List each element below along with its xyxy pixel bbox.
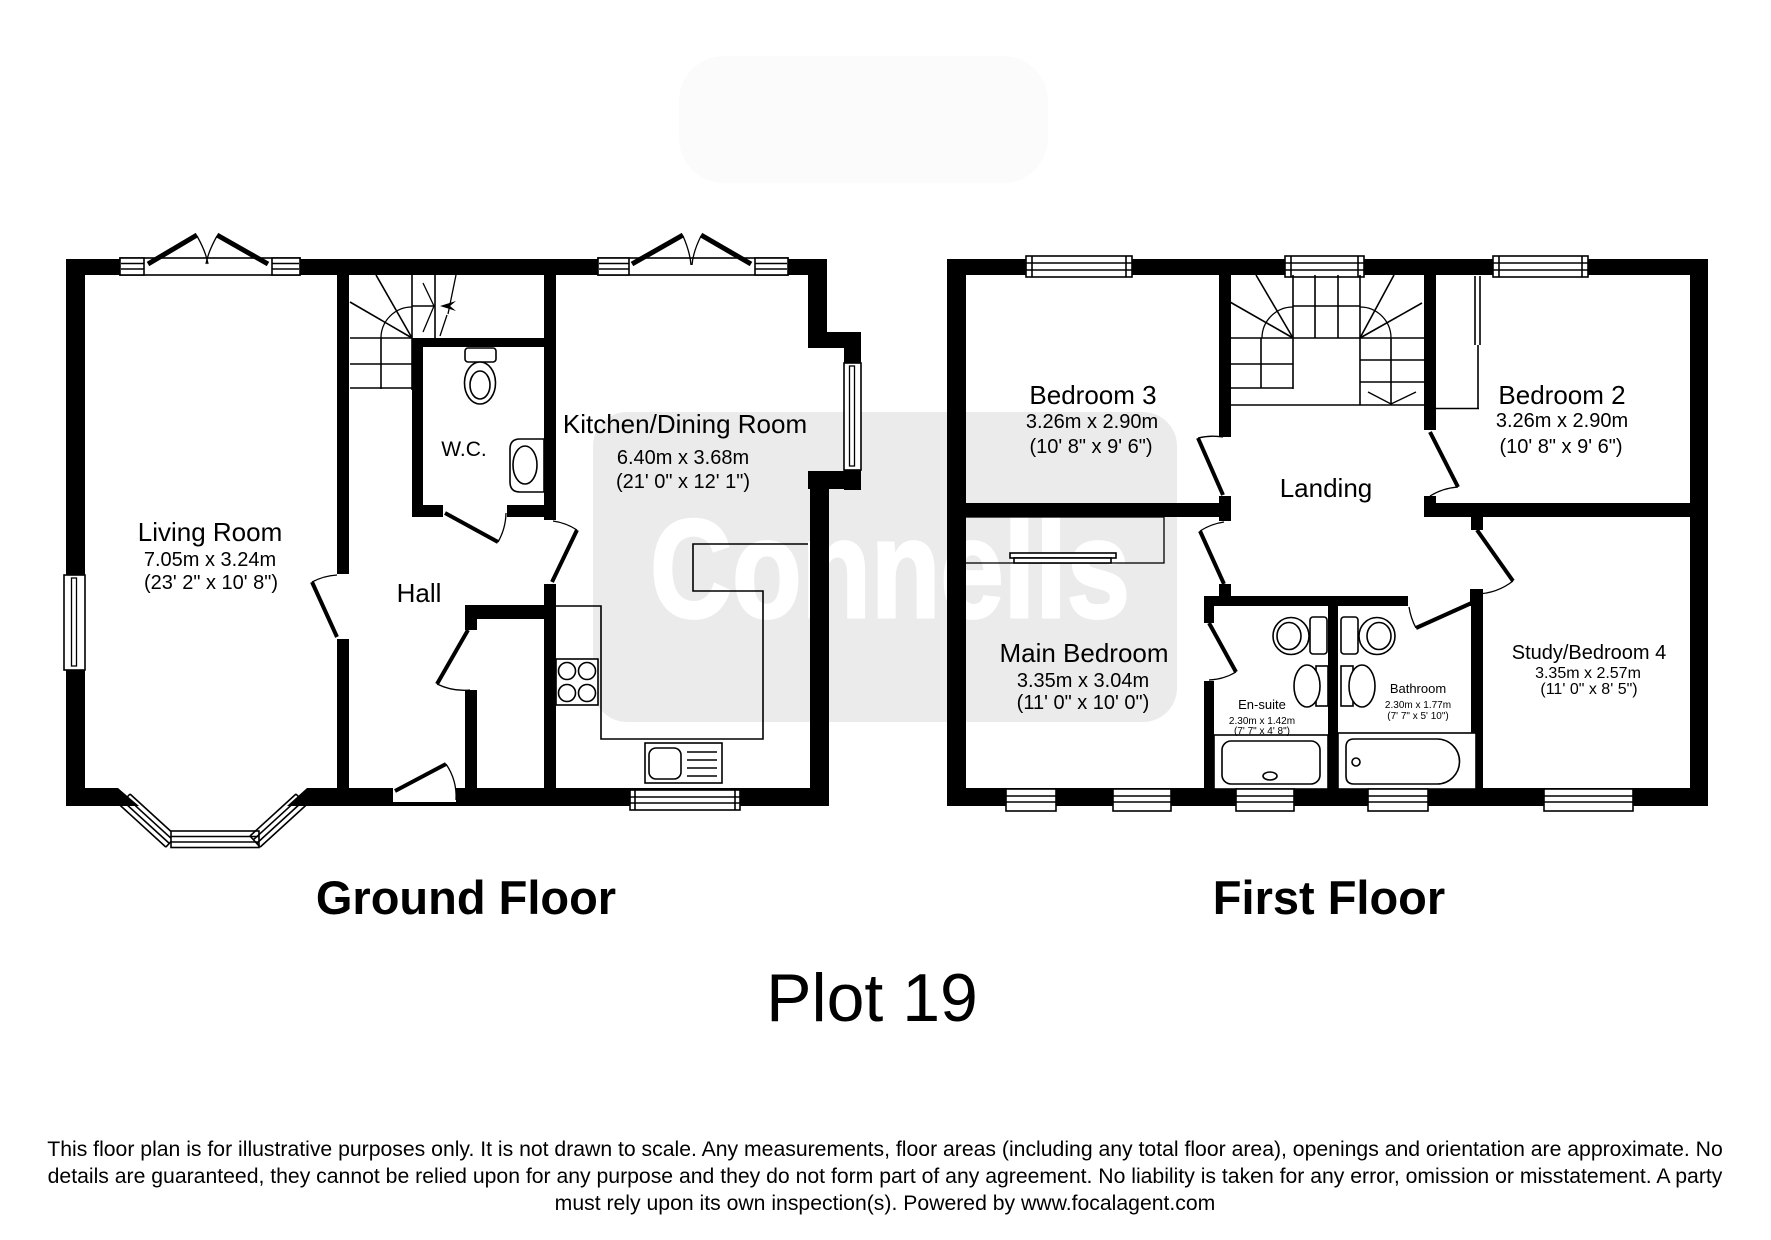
svg-text:Hall: Hall [397, 578, 442, 608]
svg-text:(23' 2" x 10' 8"): (23' 2" x 10' 8") [144, 572, 278, 594]
svg-text:Plot 19: Plot 19 [766, 960, 978, 1036]
svg-text:Bathroom: Bathroom [1390, 681, 1446, 696]
svg-text:Living Room: Living Room [138, 517, 283, 547]
svg-text:3.35m x 3.04m: 3.35m x 3.04m [1017, 670, 1149, 692]
svg-text:6.40m x 3.68m: 6.40m x 3.68m [617, 447, 749, 469]
svg-text:details are guaranteed, they c: details are guaranteed, they cannot be r… [48, 1165, 1723, 1188]
svg-text:(7' 7" x 5' 10"): (7' 7" x 5' 10") [1387, 711, 1449, 722]
svg-text:(11' 0" x 8' 5"): (11' 0" x 8' 5") [1540, 681, 1637, 698]
svg-text:Bedroom 2: Bedroom 2 [1498, 380, 1625, 410]
svg-text:Landing: Landing [1280, 473, 1373, 503]
svg-text:Study/Bedroom 4: Study/Bedroom 4 [1512, 642, 1667, 664]
svg-text:7.05m x 3.24m: 7.05m x 3.24m [144, 549, 276, 571]
svg-text:(7' 7" x 4' 8"): (7' 7" x 4' 8") [1234, 726, 1290, 737]
svg-text:Main Bedroom: Main Bedroom [999, 638, 1168, 668]
svg-text:En-suite: En-suite [1238, 697, 1286, 712]
svg-text:W.C.: W.C. [441, 438, 487, 461]
svg-text:(21' 0" x 12' 1"): (21' 0" x 12' 1") [616, 471, 750, 493]
svg-text:Ground Floor: Ground Floor [316, 871, 616, 924]
svg-text:3.26m x 2.90m: 3.26m x 2.90m [1026, 411, 1158, 433]
svg-text:2.30m x 1.77m: 2.30m x 1.77m [1385, 700, 1451, 711]
svg-text:Kitchen/Dining Room: Kitchen/Dining Room [563, 409, 807, 439]
svg-text:3.35m x 2.57m: 3.35m x 2.57m [1535, 665, 1641, 682]
svg-text:(10' 8" x 9' 6"): (10' 8" x 9' 6") [1500, 436, 1623, 458]
svg-text:3.26m x 2.90m: 3.26m x 2.90m [1496, 410, 1628, 432]
svg-text:First Floor: First Floor [1213, 871, 1445, 924]
svg-text:Bedroom 3: Bedroom 3 [1029, 380, 1156, 410]
svg-text:(11' 0" x 10' 0"): (11' 0" x 10' 0") [1017, 692, 1150, 714]
svg-text:must rely upon its own inspect: must rely upon its own inspection(s). Po… [555, 1192, 1216, 1215]
svg-text:(10' 8" x 9' 6"): (10' 8" x 9' 6") [1030, 436, 1153, 458]
svg-text:This floor plan is for illustr: This floor plan is for illustrative purp… [47, 1138, 1722, 1161]
